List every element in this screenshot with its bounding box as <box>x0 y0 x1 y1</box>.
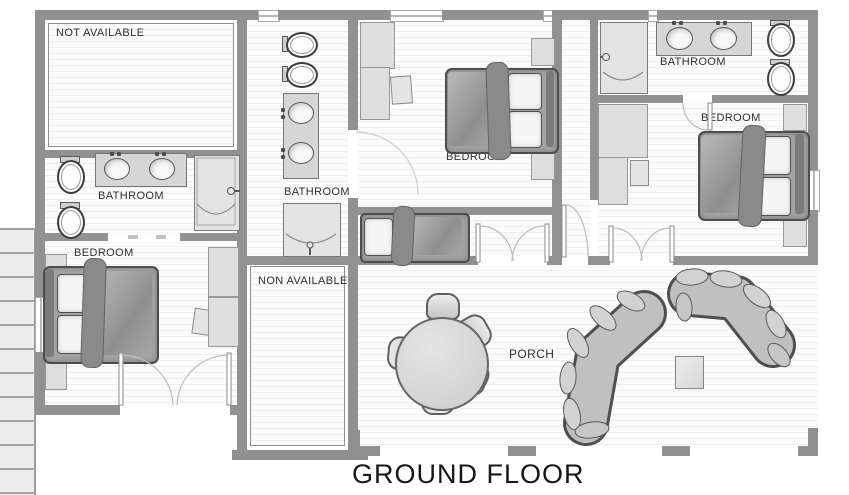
dining-chair <box>426 293 460 320</box>
faucet-icon <box>110 152 114 156</box>
bed-throw-blanket <box>485 62 511 161</box>
toilet-icon <box>286 32 318 58</box>
wall <box>442 10 543 20</box>
bed-throw-blanket <box>390 205 415 266</box>
room-label-bedroom-left: BEDROOM <box>74 247 134 259</box>
porch-column <box>508 446 536 456</box>
wardrobe <box>360 67 390 120</box>
wall <box>35 10 45 297</box>
wardrobe <box>598 157 628 205</box>
nightstand <box>531 38 555 66</box>
room-label-bathroom-right: BATHROOM <box>660 56 726 68</box>
shower-stall <box>194 155 240 231</box>
room-label-bathroom-left: BATHROOM <box>98 190 164 202</box>
wardrobe <box>208 247 239 297</box>
wall <box>553 10 648 20</box>
wall <box>348 198 358 455</box>
wall <box>598 95 683 103</box>
porch-column <box>662 446 690 456</box>
porch-column <box>350 446 380 456</box>
sink-icon <box>666 27 693 50</box>
wall <box>590 10 598 200</box>
wall <box>35 10 258 20</box>
toilet-icon <box>767 62 795 96</box>
wall <box>348 10 358 130</box>
faucet-icon <box>281 148 285 152</box>
wall <box>712 95 818 103</box>
room-not-available-floor <box>48 23 234 147</box>
shower-stall <box>600 22 648 94</box>
nightstand <box>783 104 807 131</box>
bed-headboard <box>546 71 554 147</box>
window <box>258 10 280 22</box>
floor-plan: NOT AVAILABLE BATHROOM BEDROOM BATHROOM … <box>0 0 849 495</box>
side-table <box>390 75 413 104</box>
wardrobe <box>208 297 239 347</box>
wall <box>237 256 358 265</box>
sink-icon <box>710 27 737 50</box>
wall <box>673 256 818 265</box>
room-label-porch: PORCH <box>509 347 554 361</box>
porch-column <box>798 446 818 456</box>
wardrobe <box>360 22 395 69</box>
sink-icon <box>288 102 314 124</box>
faucet-icon <box>716 21 720 25</box>
toilet-icon <box>57 160 85 194</box>
wall <box>237 10 247 460</box>
faucet-icon <box>281 108 285 112</box>
wall <box>588 256 610 265</box>
page-title: GROUND FLOOR <box>352 459 585 490</box>
window <box>390 10 444 22</box>
bed-headboard <box>795 134 804 214</box>
nightstand <box>531 152 555 180</box>
sink-icon <box>104 158 130 180</box>
room-label-bedroom-right: BEDROOM <box>701 112 761 124</box>
bed-pillow <box>508 111 542 148</box>
round-dining-table <box>395 317 489 411</box>
faucet-icon <box>672 21 676 25</box>
wall <box>657 10 818 20</box>
nightstand <box>783 219 807 247</box>
room-non-available-floor <box>250 266 345 446</box>
toilet-icon <box>286 62 318 88</box>
faucet-icon <box>155 152 159 156</box>
bed-pillow <box>508 73 542 110</box>
sink-icon <box>149 158 175 180</box>
wall <box>180 233 237 241</box>
wall <box>547 256 562 265</box>
room-corridor <box>562 20 590 256</box>
room-label-bathroom-middle: BATHROOM <box>284 186 350 198</box>
toilet-icon <box>57 206 85 239</box>
bed-throw-blanket <box>80 258 107 369</box>
staircase <box>0 228 36 495</box>
wall <box>35 405 120 415</box>
coffee-table <box>675 356 704 389</box>
room-label-non-available: NON AVAILABLE <box>258 275 348 287</box>
toilet-icon <box>767 23 795 57</box>
sink-icon <box>288 142 314 164</box>
side-table <box>630 160 649 186</box>
wall <box>278 10 390 20</box>
bed-duvet <box>412 217 462 255</box>
wall <box>232 450 368 460</box>
bed-pillow <box>364 218 393 256</box>
bed-headboard <box>45 269 54 357</box>
room-label-not-available: NOT AVAILABLE <box>56 27 144 39</box>
wardrobe <box>598 104 648 158</box>
shower-stall <box>283 203 341 257</box>
